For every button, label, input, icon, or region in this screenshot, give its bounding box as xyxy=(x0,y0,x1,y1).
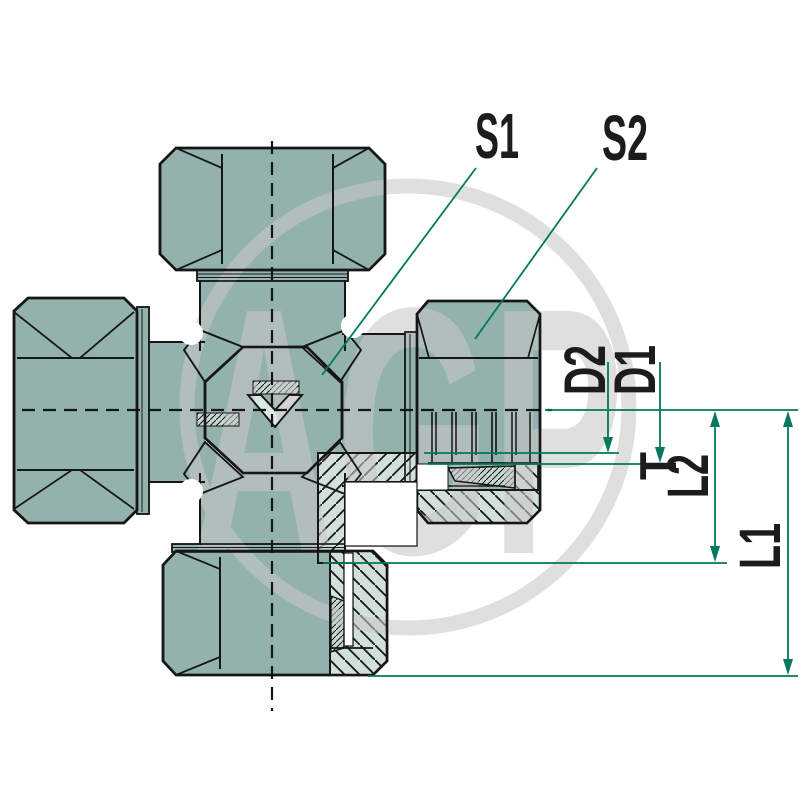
l1-arrow-down-icon xyxy=(783,659,793,675)
cross-fitting-drawing: AGP xyxy=(0,0,800,800)
junction-fillet xyxy=(179,479,203,503)
bore-gap xyxy=(417,464,448,490)
l2-arrow-down-icon xyxy=(710,546,720,562)
l1-arrow-up-icon xyxy=(783,411,793,427)
label-s1: S1 xyxy=(475,100,519,172)
label-l2: L2 xyxy=(656,454,721,498)
open-bore xyxy=(345,482,417,546)
watermark: AGP xyxy=(187,186,629,628)
label-d1: D1 xyxy=(603,345,668,395)
thread-gap xyxy=(344,553,353,646)
label-l1: L1 xyxy=(728,523,793,569)
watermark-text: AGP xyxy=(192,234,624,628)
label-s2: S2 xyxy=(602,102,648,174)
l2-arrow-up-icon xyxy=(710,411,720,427)
junction-fillet xyxy=(179,321,203,345)
technical-drawing-page: AGP xyxy=(0,0,800,800)
